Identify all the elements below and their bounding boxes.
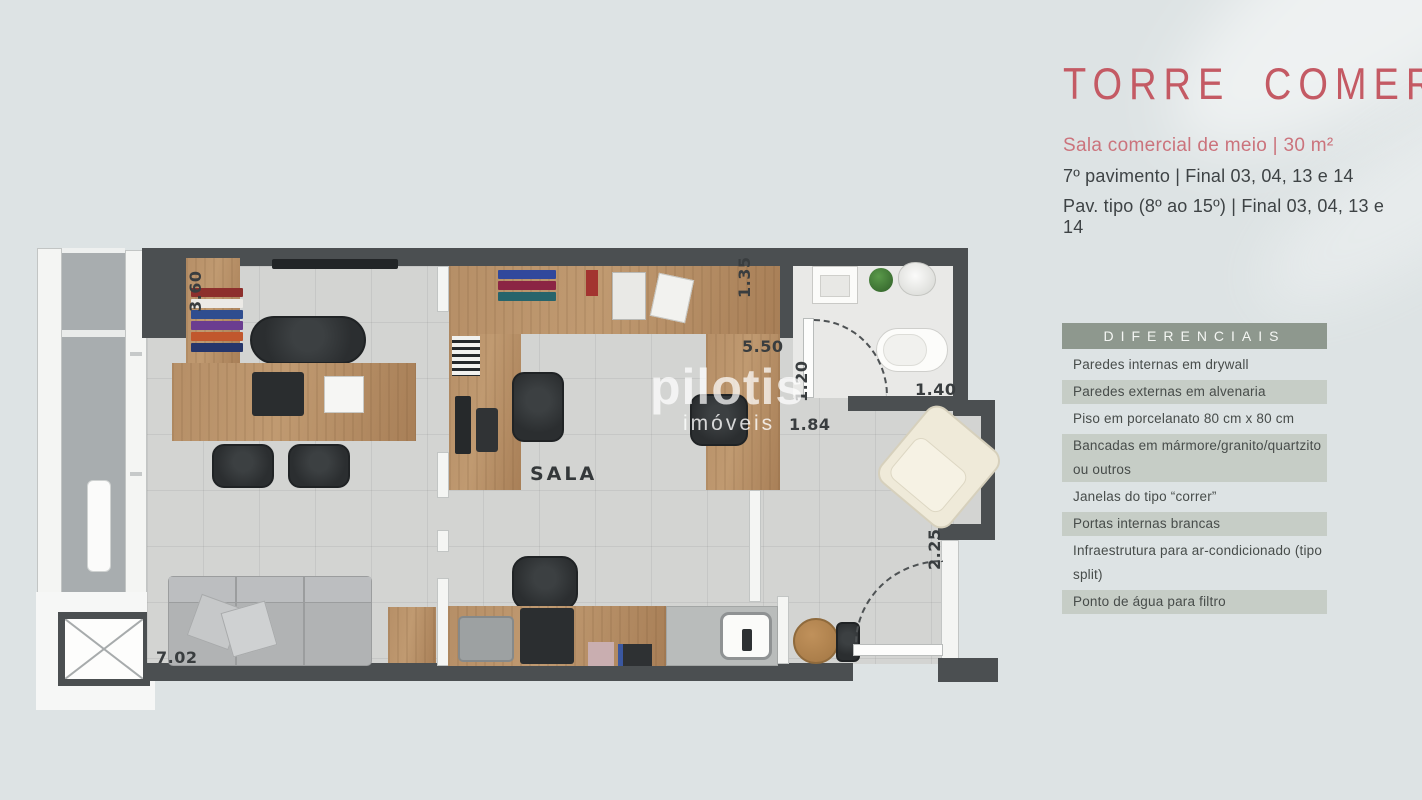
elevator-x-icon — [65, 619, 143, 679]
side-table — [388, 607, 436, 663]
decor-plant — [898, 262, 936, 296]
corridor-door — [87, 480, 111, 572]
features-list: Paredes internas em drywall Paredes exte… — [1062, 353, 1327, 614]
room-label-sala: SALA — [530, 463, 597, 485]
marketing-sheet: 3.60 1.35 5.50 1.20 1.40 1.84 2.25 7.02 … — [0, 0, 1422, 800]
laptop — [252, 372, 304, 416]
bottom-right-corner-wall — [938, 658, 998, 682]
desk-tablet — [476, 408, 498, 452]
elevator-shaft — [58, 612, 150, 686]
dim-unit-width: 7.02 — [156, 648, 197, 667]
window-tick — [130, 472, 142, 476]
partition-hall — [749, 490, 761, 602]
shelf-binders — [452, 336, 480, 376]
window-tick — [130, 352, 142, 356]
counter-end-wall — [777, 596, 789, 664]
clipboard — [612, 272, 646, 320]
partition-office — [437, 266, 449, 312]
dim-sala-width: 5.50 — [742, 337, 783, 356]
dim-left-wall: 3.60 — [186, 271, 205, 312]
floor-info-line2: Pav. tipo (8º ao 15º) | Final 03, 04, 13… — [1063, 196, 1405, 238]
partition-office — [437, 452, 449, 498]
page-title: TORRE COMERCIAL — [1063, 60, 1405, 111]
entry-door — [853, 644, 943, 656]
corridor-divider-wall — [62, 330, 125, 337]
desk-folder — [618, 644, 652, 666]
features-heading: DIFERENCIAIS — [1062, 323, 1327, 349]
wall-tv — [272, 259, 398, 269]
floor-plan: 3.60 1.35 5.50 1.20 1.40 1.84 2.25 7.02 … — [0, 0, 1040, 800]
watermark-brand: pilotis — [650, 358, 804, 416]
desk-chair — [512, 372, 564, 442]
laptop — [520, 608, 574, 664]
feature-item: Janelas do tipo “correr” — [1062, 485, 1327, 509]
info-panel: TORRE COMERCIAL Sala comercial de meio |… — [1060, 60, 1405, 238]
feature-item: Infraestrutura para ar-condicionado (tip… — [1062, 539, 1327, 587]
feature-item: Ponto de água para filtro — [1062, 590, 1327, 614]
monitor — [455, 396, 471, 454]
floor-info-line1: 7º pavimento | Final 03, 04, 13 e 14 — [1063, 166, 1405, 187]
executive-chair — [250, 316, 366, 364]
vanity-sink — [812, 266, 858, 304]
dim-hall-width: 1.84 — [789, 415, 830, 434]
dim-entry-wall: 2.25 — [925, 529, 944, 570]
partition-office — [437, 530, 449, 552]
book-stack — [498, 268, 556, 303]
bathroom-left-wall — [780, 266, 793, 338]
top-left-wall-block — [142, 248, 188, 338]
desk-book — [588, 642, 614, 666]
dim-top-right: 1.35 — [735, 257, 754, 298]
notepad — [324, 376, 364, 413]
feature-item: Paredes internas em drywall — [1062, 353, 1327, 377]
sofa-seam — [303, 577, 305, 665]
feature-item: Portas internas brancas — [1062, 512, 1327, 536]
guest-chair — [212, 444, 274, 488]
sink — [720, 612, 772, 660]
feature-item: Paredes externas em alvenaria — [1062, 380, 1327, 404]
printer — [458, 616, 514, 662]
faucet — [742, 629, 752, 651]
desk-chair — [512, 556, 578, 610]
watermark-sub: imóveis — [683, 412, 775, 436]
guest-chair — [288, 444, 350, 488]
toilet-seat — [883, 334, 927, 366]
toilet — [876, 328, 948, 372]
features-panel: DIFERENCIAIS Paredes internas em drywall… — [1062, 323, 1327, 614]
feature-item: Bancadas em mármore/granito/quartzito ou… — [1062, 434, 1327, 482]
top-wall — [142, 248, 968, 266]
feature-item: Piso em porcelanato 80 cm x 80 cm — [1062, 407, 1327, 431]
corridor-outer-wall — [37, 248, 62, 612]
dim-bath-width: 1.40 — [915, 380, 956, 399]
vanity-bowl — [820, 275, 850, 297]
plant — [869, 268, 893, 292]
desk-accessory — [586, 270, 598, 296]
unit-subtitle: Sala comercial de meio | 30 m² — [1063, 135, 1405, 157]
round-table — [793, 618, 839, 664]
